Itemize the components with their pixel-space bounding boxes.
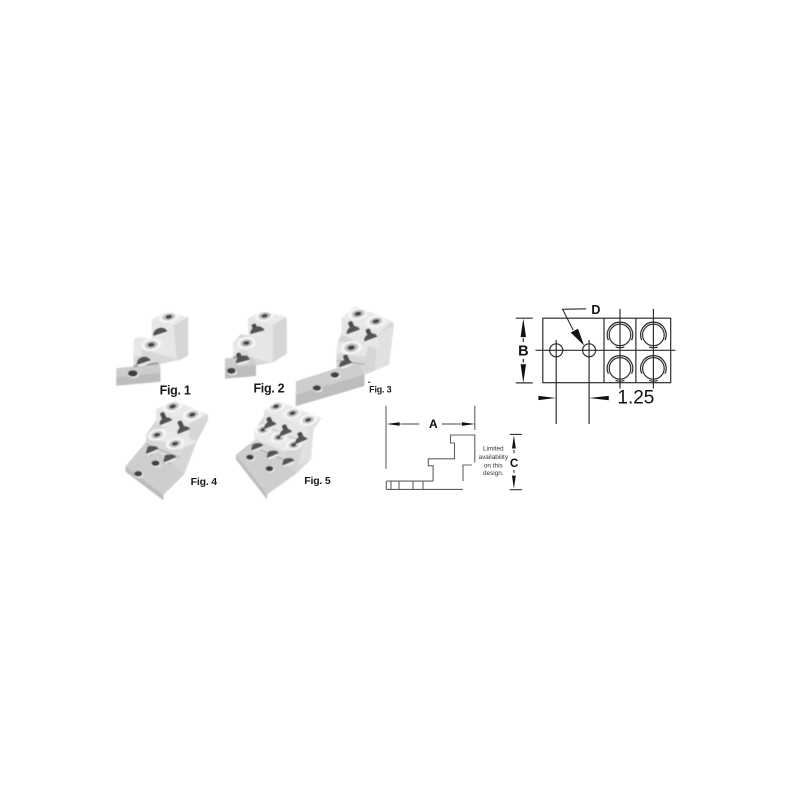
svg-text:Fig. 3: Fig. 3: [369, 385, 391, 395]
svg-text:D: D: [591, 303, 600, 317]
svg-text:Fig. 5: Fig. 5: [304, 475, 331, 487]
svg-text:C: C: [510, 458, 518, 470]
svg-text:1.25: 1.25: [617, 388, 654, 409]
svg-text:on this: on this: [484, 463, 503, 470]
svg-text:availability: availability: [479, 454, 509, 461]
svg-text:Fig. 4: Fig. 4: [191, 476, 218, 488]
svg-text:A: A: [429, 417, 438, 431]
svg-text:Limited: Limited: [483, 445, 504, 452]
svg-text:Fig. 2: Fig. 2: [253, 381, 284, 395]
svg-text:design.: design.: [483, 470, 504, 477]
svg-text:B: B: [518, 344, 528, 360]
svg-text:Fig. 1: Fig. 1: [160, 383, 191, 397]
